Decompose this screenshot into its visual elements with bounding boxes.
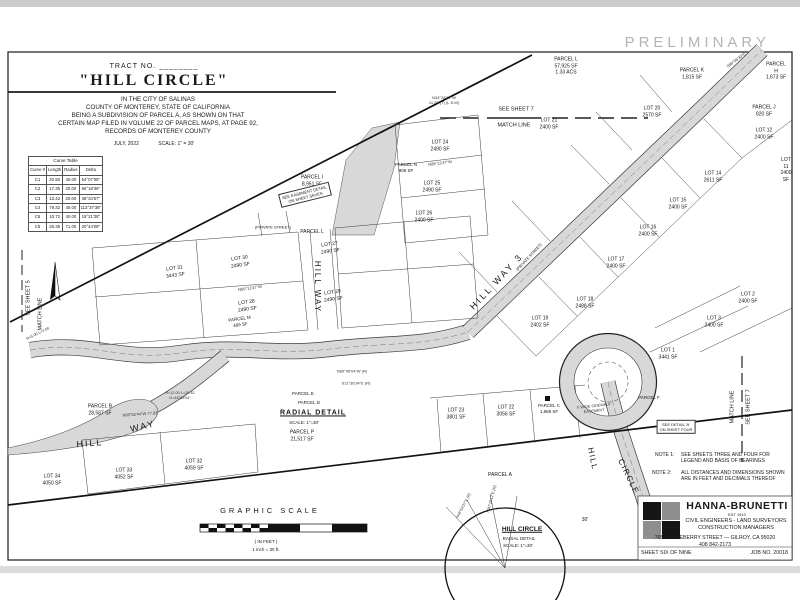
curve-table-cell: 20°44'08" xyxy=(79,222,102,231)
note2-text: ALL DISTANCES AND DIMENSIONS SHOWN ARE I… xyxy=(681,470,799,483)
subtitle-line: IN THE CITY OF SALINAS xyxy=(2,96,314,104)
graphic-scale-title: GRAPHIC SCALE xyxy=(220,506,320,516)
lot-label: LOT 29 2490 SF xyxy=(323,288,344,304)
curve-table-cell: 15°21'38" xyxy=(79,213,102,222)
curve-table-header-cell: Radius xyxy=(63,166,79,175)
lot-label: LOT 11 2400 SF xyxy=(779,157,793,183)
lot-label: LOT 21 2400 SF xyxy=(540,118,559,131)
hill-circle-detail-title: HILL CIRCLE xyxy=(502,526,542,534)
firm-title-block: HANNA-BRUNETTI EST 1910 CIVIL ENGINEERS … xyxy=(638,496,792,560)
lot-label: LOT 24 2490 SF xyxy=(431,140,450,153)
matchline-label-right-sheet: SEE SHEET 7 xyxy=(745,389,752,424)
map-title: "HILL CIRCLE" xyxy=(8,72,300,90)
curve-table-cell: 71.00 xyxy=(63,222,79,231)
curve-table-cell: 54°07'08" xyxy=(79,175,102,184)
curve-table-cell: 17.35 xyxy=(47,185,63,194)
subtitle-line: CERTAIN MAP FILED IN VOLUME 22 OF PARCEL… xyxy=(2,120,314,128)
curve-table-header-cell: Delta xyxy=(79,166,102,175)
curve-table-header: Curve #LengthRadiusDelta xyxy=(29,166,103,175)
curve-table-title: Curve Table xyxy=(29,157,103,166)
curve-table-cell: 40.00 xyxy=(63,213,79,222)
firm-address: 7651 EIGLEBERRY STREET — GILROY, CA 9502… xyxy=(640,535,790,541)
firm-name: HANNA-BRUNETTI xyxy=(684,500,790,512)
lot-label: LOT 32 4059 SF xyxy=(185,459,204,472)
lot-label: LOT 23 3801 SF xyxy=(447,408,466,421)
street-label-hill: HILL xyxy=(76,437,104,451)
private-street-label: (PRIVATE STREET) xyxy=(255,224,291,229)
parcel-label: PARCEL E xyxy=(292,391,314,397)
lot-label: LOT 22 3056 SF xyxy=(497,405,516,418)
lot-label: LOT 12 2400 SF xyxy=(755,128,774,141)
curve-table-cell: 20.00 xyxy=(63,194,79,203)
curve-table: Curve Table Curve #LengthRadiusDelta C12… xyxy=(28,156,103,232)
curve-table-cell: 13.42 xyxy=(47,194,63,203)
lot-label: LOT 33 4052 SF xyxy=(115,468,134,481)
firm-services-1: CIVIL ENGINEERS - LAND SURVEYORS xyxy=(682,518,790,524)
lot-label: LOT 1 3441 SF xyxy=(659,348,678,361)
parcel-label: PARCEL N 906 SF xyxy=(395,162,417,174)
street-label-hill-way: HILL WAY xyxy=(312,261,322,313)
parcel-label: PARCEL L 57,925 SF 1.33 ACS xyxy=(554,56,578,76)
lot-label: LOT 20 2570 SF xyxy=(643,106,662,119)
job-number: JOB NO. 20018 xyxy=(751,550,788,556)
lot-label: LOT 34 4050 SF xyxy=(43,474,62,487)
hill-circle-detail-scale: SCALE: 1"=30' xyxy=(503,543,533,549)
curve-table-cell: C1 xyxy=(29,175,47,184)
logo-square-gray xyxy=(662,502,680,520)
note1-text: SEE SHEETS THREE AND FOUR FOR LEGEND AND… xyxy=(681,452,799,465)
note1-label: NOTE 1: xyxy=(655,452,674,458)
subtitle-line: COUNTY OF MONTEREY, STATE OF CALIFORNIA xyxy=(2,104,314,112)
curve-table-cell: C2 xyxy=(29,185,47,194)
logo-square-black xyxy=(643,502,661,520)
lot-label: LOT 17 2400 SF xyxy=(607,257,626,270)
firm-phone: 408 842-2173 xyxy=(640,542,790,548)
curve-table-cell: 20.00 xyxy=(63,185,79,194)
matchline-label-top-sheet: SEE SHEET 7 xyxy=(498,106,533,113)
date-scale-row: JULY, 2022 SCALE: 1" = 30' xyxy=(8,141,300,147)
dimension-30ft: 30' xyxy=(582,517,589,524)
parcel-label: PARCEL D xyxy=(298,400,320,406)
curve-table-cell: 20.50 xyxy=(47,175,63,184)
curve-table-cell: 40.00 xyxy=(63,175,79,184)
lot-label: LOT 28 2490 SF xyxy=(237,298,258,314)
parcel-label: PARCEL J 820 SF xyxy=(752,105,775,118)
radial-bearing-annotation: N89°45'04"W (R) xyxy=(337,368,367,373)
lot-label: LOT 15 2400 SF xyxy=(669,198,688,211)
lot-label: LOT 25 2490 SF xyxy=(423,181,442,194)
graphic-scale-ratio: 1 inch = 30 ft. xyxy=(252,547,279,553)
curve-table-row: C120.5040.0054°07'08" xyxy=(29,175,103,184)
curve-table-row: C313.4220.0038°34'57" xyxy=(29,194,103,203)
curve-table-cell: 10.72 xyxy=(47,213,63,222)
lot-label: LOT 2 2400 SF xyxy=(739,292,758,305)
map-date: JULY, 2022 xyxy=(114,141,139,147)
map-scale: SCALE: 1" = 30' xyxy=(158,141,194,147)
curve-annotation: R=12.00 L=20.42 D=48°05'04" xyxy=(165,391,194,401)
curve-table-cell: 113°37'38" xyxy=(79,203,102,212)
curve-table-row: C217.3520.0065°18'36" xyxy=(29,185,103,194)
lot-label: LOT 16 2400 SF xyxy=(639,225,658,238)
parcel-label: PARCEL H 1,673 SF xyxy=(764,61,788,81)
parcel-label: PARCEL P 21,517 SF xyxy=(290,430,314,443)
matchline-label-top: MATCH LINE xyxy=(498,122,531,129)
lot-label: LOT 18 2488 SF xyxy=(576,297,595,310)
curve-table-cell: 25.35 xyxy=(47,222,63,231)
curve-table-cell: 40.00 xyxy=(63,203,79,212)
lot-label: LOT 14 2611 SF xyxy=(704,171,723,184)
detail-a-note: SEE DETAIL 'A' ON SHEET FOUR xyxy=(657,420,696,434)
matchline-label-left-sheet: SEE SHEET 5 xyxy=(25,280,32,315)
plat-sheet: PRELIMINARY xyxy=(0,0,800,600)
matchline-label-left: MATCH LINE xyxy=(37,298,44,331)
curve-table-cell: C6 xyxy=(29,222,47,231)
firm-services-2: CONSTRUCTION MANAGERS xyxy=(682,525,790,531)
curve-table-row: C510.7240.0015°21'38" xyxy=(29,213,103,222)
sheet-number: SHEET SIX OF NINE xyxy=(641,550,692,556)
parcel-label: PARCEL K 1,815 SF xyxy=(680,68,704,81)
radial-detail-scale: SCALE: 1"=30' xyxy=(289,420,319,426)
graphic-scale-units: ( IN FEET ) xyxy=(255,539,278,545)
title-subtitle: IN THE CITY OF SALINAS COUNTY OF MONTERE… xyxy=(2,96,314,136)
firm-established: EST 1910 xyxy=(684,512,790,517)
tract-number: TRACT NO. ________ xyxy=(8,63,300,70)
curve-table-cell: 79.32 xyxy=(47,203,63,212)
curve-table-cell: C4 xyxy=(29,203,47,212)
matchline-label-right: MATCH LINE xyxy=(729,391,736,424)
radial-bearing-annotation: S11°36'34"E (R) xyxy=(342,380,371,385)
curve-table-cell: 38°34'57" xyxy=(79,194,102,203)
lot-label: LOT 30 2490 SF xyxy=(230,254,251,270)
lot-label: LOT 31 3443 SF xyxy=(165,264,186,280)
parcel-label: PARCEL B 28,587 SF xyxy=(88,404,112,417)
note2-label: NOTE 2: xyxy=(652,470,671,476)
curve-table-cell: C5 xyxy=(29,213,47,222)
lot-label: LOT 19 2402 SF xyxy=(531,316,550,329)
curve-table-row: C479.3240.00113°37'38" xyxy=(29,203,103,212)
hill-circle-detail-sub: RADIAL DETAIL xyxy=(503,536,536,542)
curve-table-header-cell: Length xyxy=(47,166,63,175)
lot-label: LOT 26 2400 SF xyxy=(415,211,434,224)
curve-table-cell: 65°18'36" xyxy=(79,185,102,194)
curve-table-row: C625.3571.0020°44'08" xyxy=(29,222,103,231)
lot-label: LOT 3 2400 SF xyxy=(705,316,724,329)
parcel-label: PARCEL F xyxy=(638,395,660,401)
curve-table-cell: C3 xyxy=(29,194,47,203)
lot-label: LOT 27 2490 SF xyxy=(320,240,341,256)
curve-table-header-cell: Curve # xyxy=(29,166,47,175)
subtitle-line: BEING A SUBDIVISION OF PARCEL A, AS SHOW… xyxy=(2,112,314,120)
parcel-label: PARCEL L xyxy=(300,229,324,236)
bearing-annotation: N34°28'17"W 11.20 (T) (L.S.M) xyxy=(429,95,459,105)
radial-detail-title: RADIAL DETAIL xyxy=(280,408,346,417)
parcel-label: PARCEL A xyxy=(488,472,512,479)
subtitle-line: RECORDS OF MONTEREY COUNTY xyxy=(2,128,314,136)
parcel-label: PARCEL C 1,868 SF xyxy=(538,403,560,415)
